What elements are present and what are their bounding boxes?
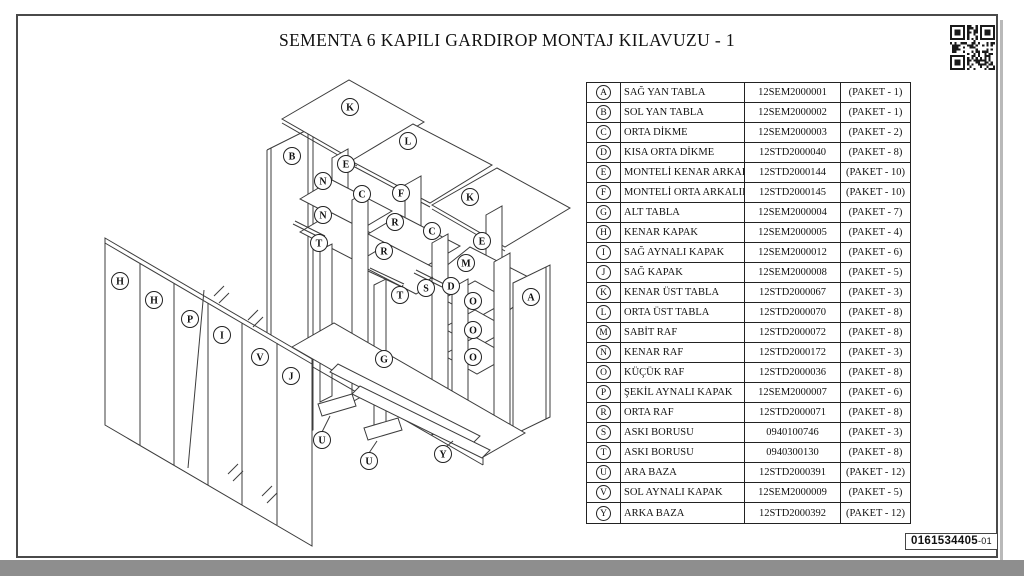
part-name: KISA ORTA DİKME [621, 143, 745, 162]
part-package: (PAKET - 3) [841, 423, 910, 442]
svg-text:E: E [479, 237, 486, 248]
part-letter-cell: M [587, 323, 621, 342]
svg-text:V: V [256, 353, 264, 364]
part-code: 12SEM2000005 [745, 223, 841, 242]
part-letter-cell: G [587, 203, 621, 222]
table-row: LORTA ÜST TABLA12STD2000070(PAKET - 8) [587, 303, 910, 323]
part-package: (PAKET - 8) [841, 443, 910, 462]
part-package: (PAKET - 5) [841, 263, 910, 282]
svg-text:S: S [423, 284, 429, 295]
part-letter-cell: Y [587, 503, 621, 523]
part-letter-cell: E [587, 163, 621, 182]
part-package: (PAKET - 8) [841, 363, 910, 382]
svg-text:H: H [150, 296, 158, 307]
part-letter-badge: Y [596, 506, 611, 521]
part-package: (PAKET - 12) [841, 503, 910, 523]
part-code: 12STD2000067 [745, 283, 841, 302]
part-letter-badge: N [596, 345, 611, 360]
table-row: EMONTELİ KENAR ARKALIK12STD2000144(PAKET… [587, 163, 910, 183]
part-letter-cell: B [587, 103, 621, 122]
table-row: NKENAR RAF12STD2000172(PAKET - 3) [587, 343, 910, 363]
part-code: 12STD2000172 [745, 343, 841, 362]
part-name: ŞEKİL AYNALI KAPAK [621, 383, 745, 402]
part-letter-cell: P [587, 383, 621, 402]
part-name: SAĞ AYNALI KAPAK [621, 243, 745, 262]
table-row: UARA BAZA12STD2000391(PAKET - 12) [587, 463, 910, 483]
svg-text:J: J [289, 372, 294, 383]
part-name: SAĞ KAPAK [621, 263, 745, 282]
part-code: 12SEM2000001 [745, 83, 841, 102]
part-letter-badge: I [596, 245, 611, 260]
part-package: (PAKET - 10) [841, 163, 910, 182]
part-letter-badge: S [596, 425, 611, 440]
part-letter-badge: D [596, 145, 611, 160]
qr-code-icon [950, 25, 995, 70]
parts-table: ASAĞ YAN TABLA12SEM2000001(PAKET - 1)BSO… [586, 82, 911, 524]
part-name: ARA BAZA [621, 463, 745, 482]
svg-text:G: G [380, 355, 388, 366]
table-row: ISAĞ AYNALI KAPAK12SEM2000012(PAKET - 6) [587, 243, 910, 263]
part-code: 12STD2000070 [745, 303, 841, 322]
part-code: 12STD2000072 [745, 323, 841, 342]
part-name: ALT TABLA [621, 203, 745, 222]
part-letter-badge: L [596, 305, 611, 320]
table-row: MSABİT RAF12STD2000072(PAKET - 8) [587, 323, 910, 343]
svg-text:H: H [116, 277, 124, 288]
part-name: KENAR ÜST TABLA [621, 283, 745, 302]
table-row: SASKI BORUSU0940100746(PAKET - 3) [587, 423, 910, 443]
svg-text:U: U [318, 436, 325, 447]
table-row: OKÜÇÜK RAF12STD2000036(PAKET - 8) [587, 363, 910, 383]
part-letter-cell: U [587, 463, 621, 482]
svg-text:I: I [220, 331, 224, 342]
part-name: MONTELİ ORTA ARKALIK [621, 183, 745, 202]
part-code: 12STD2000145 [745, 183, 841, 202]
part-code: 12SEM2000009 [745, 483, 841, 502]
part-letter-badge: R [596, 405, 611, 420]
part-code: 0940100746 [745, 423, 841, 442]
part-letter-badge: B [596, 105, 611, 120]
part-letter-cell: S [587, 423, 621, 442]
table-row: JSAĞ KAPAK12SEM2000008(PAKET - 5) [587, 263, 910, 283]
part-name: KÜÇÜK RAF [621, 363, 745, 382]
part-code: 12STD2000040 [745, 143, 841, 162]
svg-text:T: T [397, 291, 404, 302]
part-code: 12SEM2000003 [745, 123, 841, 142]
svg-text:N: N [319, 177, 327, 188]
part-package: (PAKET - 1) [841, 83, 910, 102]
part-package: (PAKET - 7) [841, 203, 910, 222]
table-row: DKISA ORTA DİKME12STD2000040(PAKET - 8) [587, 143, 910, 163]
part-letter-badge: A [596, 85, 611, 100]
part-name: SOL AYNALI KAPAK [621, 483, 745, 502]
part-letter-badge: E [596, 165, 611, 180]
doc-code-suffix: -01 [978, 536, 992, 546]
part-letter-cell: A [587, 83, 621, 102]
part-letter-cell: T [587, 443, 621, 462]
part-letter-cell: D [587, 143, 621, 162]
part-code: 12STD2000071 [745, 403, 841, 422]
part-code: 12STD2000391 [745, 463, 841, 482]
part-name: KENAR RAF [621, 343, 745, 362]
part-name: SAĞ YAN TABLA [621, 83, 745, 102]
part-letter-badge: P [596, 385, 611, 400]
table-row: VSOL AYNALI KAPAK12SEM2000009(PAKET - 5) [587, 483, 910, 503]
part-letter-badge: H [596, 225, 611, 240]
svg-text:F: F [398, 189, 404, 200]
part-package: (PAKET - 12) [841, 463, 910, 482]
svg-text:K: K [346, 103, 354, 114]
table-row: TASKI BORUSU0940300130(PAKET - 8) [587, 443, 910, 463]
svg-text:R: R [380, 247, 388, 258]
part-package: (PAKET - 6) [841, 383, 910, 402]
part-package: (PAKET - 5) [841, 483, 910, 502]
part-package: (PAKET - 3) [841, 283, 910, 302]
svg-text:Y: Y [439, 450, 447, 461]
part-package: (PAKET - 8) [841, 303, 910, 322]
table-row: ASAĞ YAN TABLA12SEM2000001(PAKET - 1) [587, 83, 910, 103]
part-letter-cell: J [587, 263, 621, 282]
part-package: (PAKET - 2) [841, 123, 910, 142]
part-code: 12STD2000036 [745, 363, 841, 382]
svg-text:A: A [527, 293, 535, 304]
table-row: FMONTELİ ORTA ARKALIK12STD2000145(PAKET … [587, 183, 910, 203]
part-letter-badge: G [596, 205, 611, 220]
svg-text:K: K [466, 193, 474, 204]
part-letter-cell: I [587, 243, 621, 262]
svg-text:O: O [469, 297, 477, 308]
table-row: HKENAR KAPAK12SEM2000005(PAKET - 4) [587, 223, 910, 243]
part-letter-cell: H [587, 223, 621, 242]
manual-page: SEMENTA 6 KAPILI GARDIROP MONTAJ KILAVUZ… [0, 0, 1024, 576]
svg-text:U: U [365, 457, 372, 468]
svg-text:P: P [187, 315, 193, 326]
part-letter-badge: J [596, 265, 611, 280]
part-code: 12SEM2000007 [745, 383, 841, 402]
svg-text:N: N [319, 211, 327, 222]
part-code: 12SEM2000008 [745, 263, 841, 282]
part-package: (PAKET - 1) [841, 103, 910, 122]
part-code: 12STD2000392 [745, 503, 841, 523]
doc-code: 0161534405 [911, 535, 978, 547]
svg-text:D: D [447, 282, 454, 293]
svg-text:C: C [428, 227, 435, 238]
svg-text:O: O [469, 326, 477, 337]
table-row: YARKA BAZA12STD2000392(PAKET - 12) [587, 503, 910, 523]
part-code: 12SEM2000004 [745, 203, 841, 222]
svg-text:R: R [391, 218, 399, 229]
table-row: PŞEKİL AYNALI KAPAK12SEM2000007(PAKET - … [587, 383, 910, 403]
part-letter-cell: F [587, 183, 621, 202]
part-name: SABİT RAF [621, 323, 745, 342]
table-row: GALT TABLA12SEM2000004(PAKET - 7) [587, 203, 910, 223]
part-name: MONTELİ KENAR ARKALIK [621, 163, 745, 182]
svg-text:B: B [289, 152, 296, 163]
part-name: ORTA DİKME [621, 123, 745, 142]
page-edge-bottom [0, 560, 1024, 576]
part-letter-cell: R [587, 403, 621, 422]
part-letter-cell: C [587, 123, 621, 142]
doc-code-box: 0161534405-01 [905, 533, 998, 550]
part-letter-cell: N [587, 343, 621, 362]
part-name: ORTA ÜST TABLA [621, 303, 745, 322]
part-name: KENAR KAPAK [621, 223, 745, 242]
part-letter-badge: M [596, 325, 611, 340]
part-package: (PAKET - 8) [841, 323, 910, 342]
part-letter-cell: O [587, 363, 621, 382]
part-package: (PAKET - 3) [841, 343, 910, 362]
parts-table-body: ASAĞ YAN TABLA12SEM2000001(PAKET - 1)BSO… [587, 83, 910, 523]
svg-text:O: O [469, 353, 477, 364]
part-code: 0940300130 [745, 443, 841, 462]
part-name: ASKI BORUSU [621, 443, 745, 462]
part-letter-badge: O [596, 365, 611, 380]
part-letter-cell: K [587, 283, 621, 302]
part-name: ORTA RAF [621, 403, 745, 422]
part-code: 12STD2000144 [745, 163, 841, 182]
part-letter-badge: F [596, 185, 611, 200]
part-code: 12SEM2000002 [745, 103, 841, 122]
part-name: ARKA BAZA [621, 503, 745, 523]
svg-text:T: T [316, 239, 323, 250]
part-package: (PAKET - 8) [841, 403, 910, 422]
part-package: (PAKET - 4) [841, 223, 910, 242]
svg-text:L: L [405, 137, 412, 148]
table-row: RORTA RAF12STD2000071(PAKET - 8) [587, 403, 910, 423]
part-name: ASKI BORUSU [621, 423, 745, 442]
part-letter-badge: K [596, 285, 611, 300]
part-name: SOL YAN TABLA [621, 103, 745, 122]
svg-text:M: M [461, 259, 471, 270]
part-letter-cell: L [587, 303, 621, 322]
part-letter-badge: U [596, 465, 611, 480]
part-package: (PAKET - 10) [841, 183, 910, 202]
part-letter-badge: V [596, 485, 611, 500]
table-row: BSOL YAN TABLA12SEM2000002(PAKET - 1) [587, 103, 910, 123]
part-package: (PAKET - 8) [841, 143, 910, 162]
part-package: (PAKET - 6) [841, 243, 910, 262]
svg-text:C: C [358, 190, 365, 201]
table-row: KKENAR ÜST TABLA12STD2000067(PAKET - 3) [587, 283, 910, 303]
table-row: CORTA DİKME12SEM2000003(PAKET - 2) [587, 123, 910, 143]
part-letter-badge: T [596, 445, 611, 460]
part-letter-badge: C [596, 125, 611, 140]
part-letter-cell: V [587, 483, 621, 502]
svg-text:E: E [343, 160, 350, 171]
part-code: 12SEM2000012 [745, 243, 841, 262]
